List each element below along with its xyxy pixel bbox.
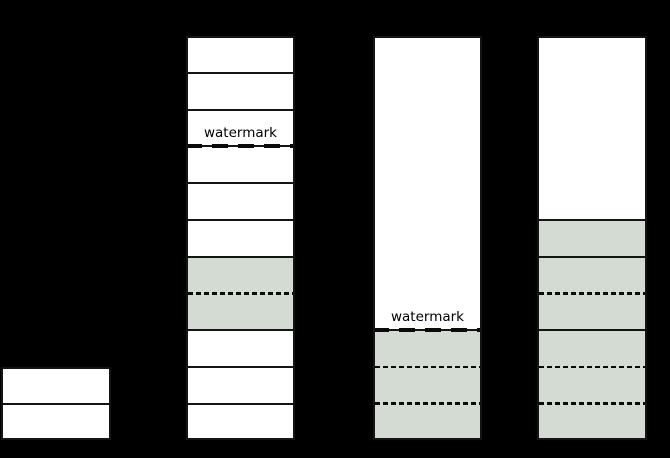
cell-white bbox=[186, 330, 295, 367]
cell-white bbox=[186, 36, 295, 73]
cell-border-line bbox=[186, 72, 295, 74]
cell-border-line bbox=[186, 182, 295, 184]
column-4 bbox=[537, 36, 647, 440]
column-3: watermark bbox=[373, 36, 482, 440]
cell-border-line bbox=[537, 256, 647, 258]
cell-white bbox=[186, 146, 295, 183]
cell-white bbox=[1, 367, 111, 404]
cell-border-line bbox=[537, 219, 647, 221]
cell-border-line bbox=[186, 366, 295, 368]
dotted-divider-line bbox=[539, 292, 645, 295]
cell-border-line bbox=[186, 219, 295, 221]
cell-green bbox=[373, 330, 482, 440]
cell-white bbox=[373, 36, 482, 330]
cell-green bbox=[537, 330, 647, 440]
dotted-divider-line bbox=[539, 366, 645, 369]
cell-white bbox=[186, 220, 295, 257]
cell-white bbox=[186, 183, 295, 220]
dotted-divider-line bbox=[375, 366, 480, 369]
cell-green bbox=[537, 220, 647, 257]
column-2: watermark bbox=[186, 36, 295, 440]
watermark-label: watermark bbox=[373, 308, 482, 326]
cell-border-line bbox=[537, 329, 647, 331]
cell-white bbox=[186, 73, 295, 110]
cell-white bbox=[1, 404, 111, 441]
dotted-divider-line bbox=[188, 292, 293, 295]
column-1 bbox=[1, 367, 111, 441]
watermark-threshold-line bbox=[373, 328, 482, 332]
cell-white bbox=[186, 367, 295, 404]
watermark-threshold-line bbox=[186, 144, 295, 148]
dotted-divider-line bbox=[375, 402, 480, 405]
cell-border-line bbox=[186, 109, 295, 111]
cell-border-line bbox=[186, 256, 295, 258]
cell-white bbox=[537, 36, 647, 220]
cell-border-line bbox=[186, 403, 295, 405]
diagram-canvas: watermarkwatermark bbox=[0, 0, 670, 458]
cell-border-line bbox=[1, 403, 111, 405]
cell-white bbox=[186, 404, 295, 441]
cell-border-line bbox=[186, 329, 295, 331]
dotted-divider-line bbox=[539, 402, 645, 405]
watermark-label: watermark bbox=[186, 124, 295, 142]
